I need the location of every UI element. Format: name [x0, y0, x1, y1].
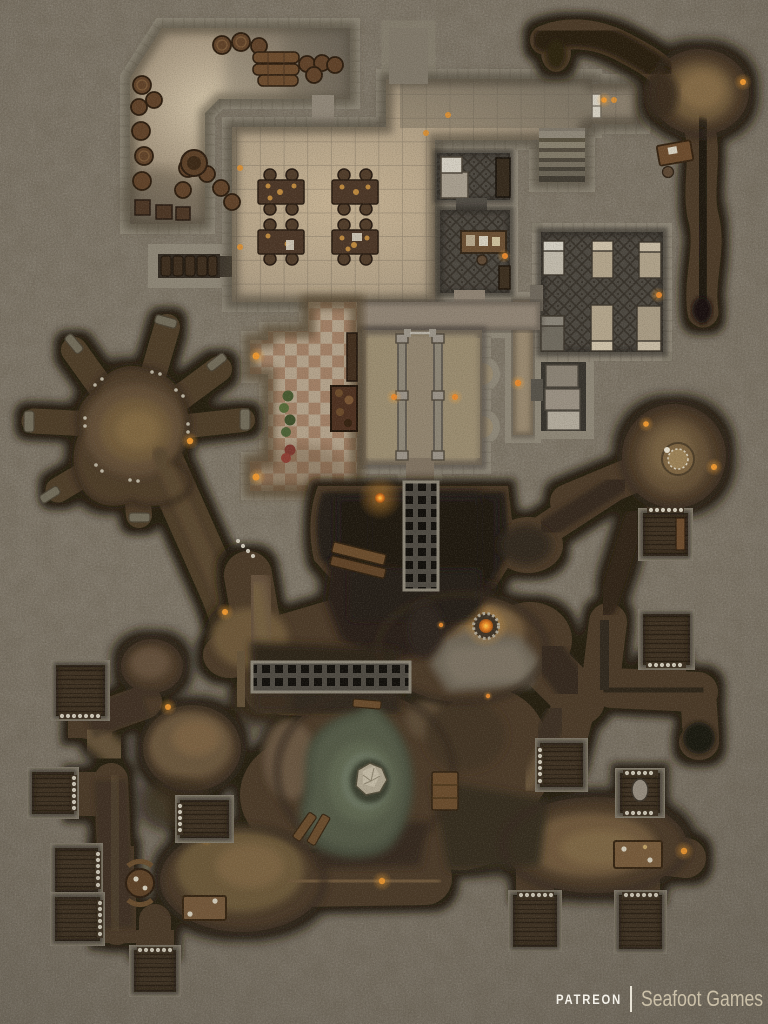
svg-text:Seafoot Games: Seafoot Games: [641, 986, 763, 1011]
svg-text:PATREON: PATREON: [556, 992, 622, 1007]
